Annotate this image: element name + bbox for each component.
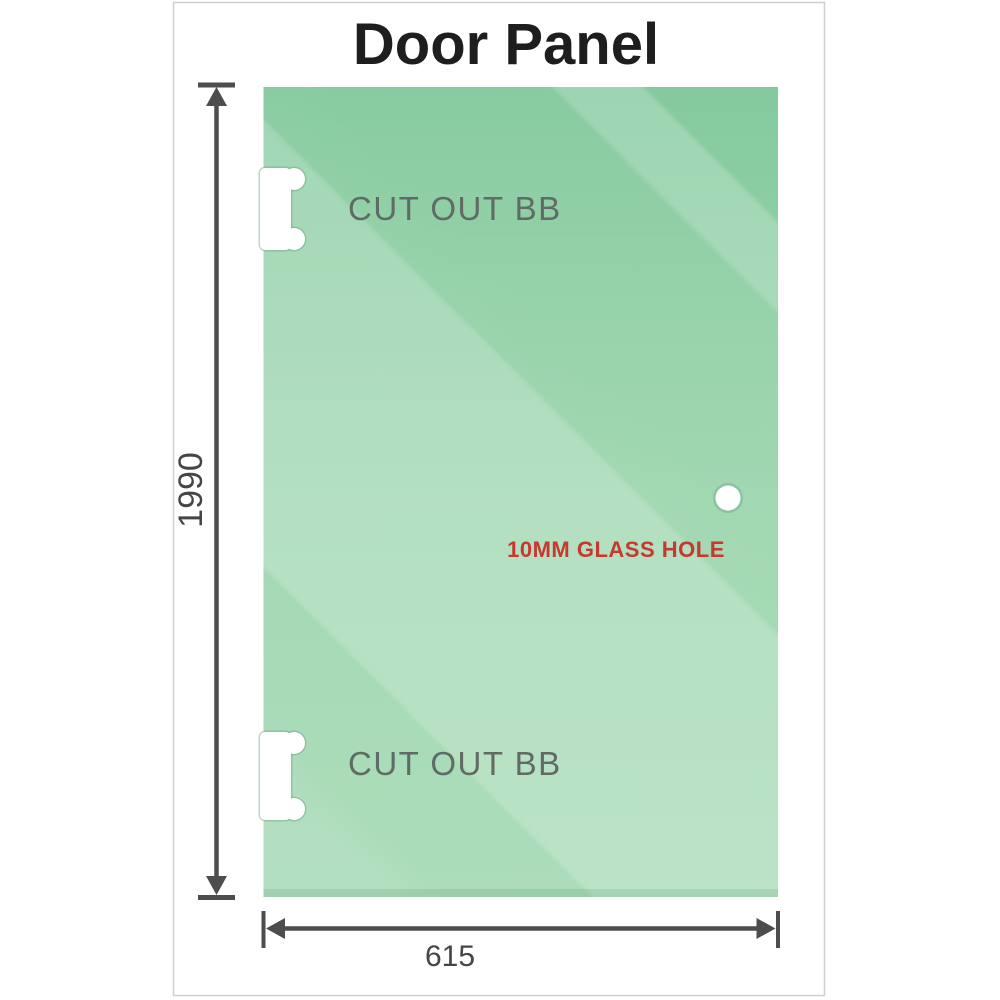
height-dimension-label: 1990	[172, 452, 210, 528]
glass-hole-circle	[716, 486, 741, 511]
glass-hole	[713, 483, 743, 513]
page-title: Door Panel	[353, 12, 659, 77]
cutout-bottom-label: CUT OUT BB	[348, 745, 562, 782]
width-dimension-label: 615	[425, 940, 475, 973]
door-panel-diagram: Door Panel CUT OUT BB C	[0, 0, 1000, 1000]
glass-bottom-edge-shade	[264, 889, 779, 897]
diagram-canvas: Door Panel CUT OUT BB C	[0, 0, 1000, 1000]
cutout-top-label: CUT OUT BB	[348, 190, 562, 227]
glass-hole-label: 10MM GLASS HOLE	[507, 537, 725, 562]
